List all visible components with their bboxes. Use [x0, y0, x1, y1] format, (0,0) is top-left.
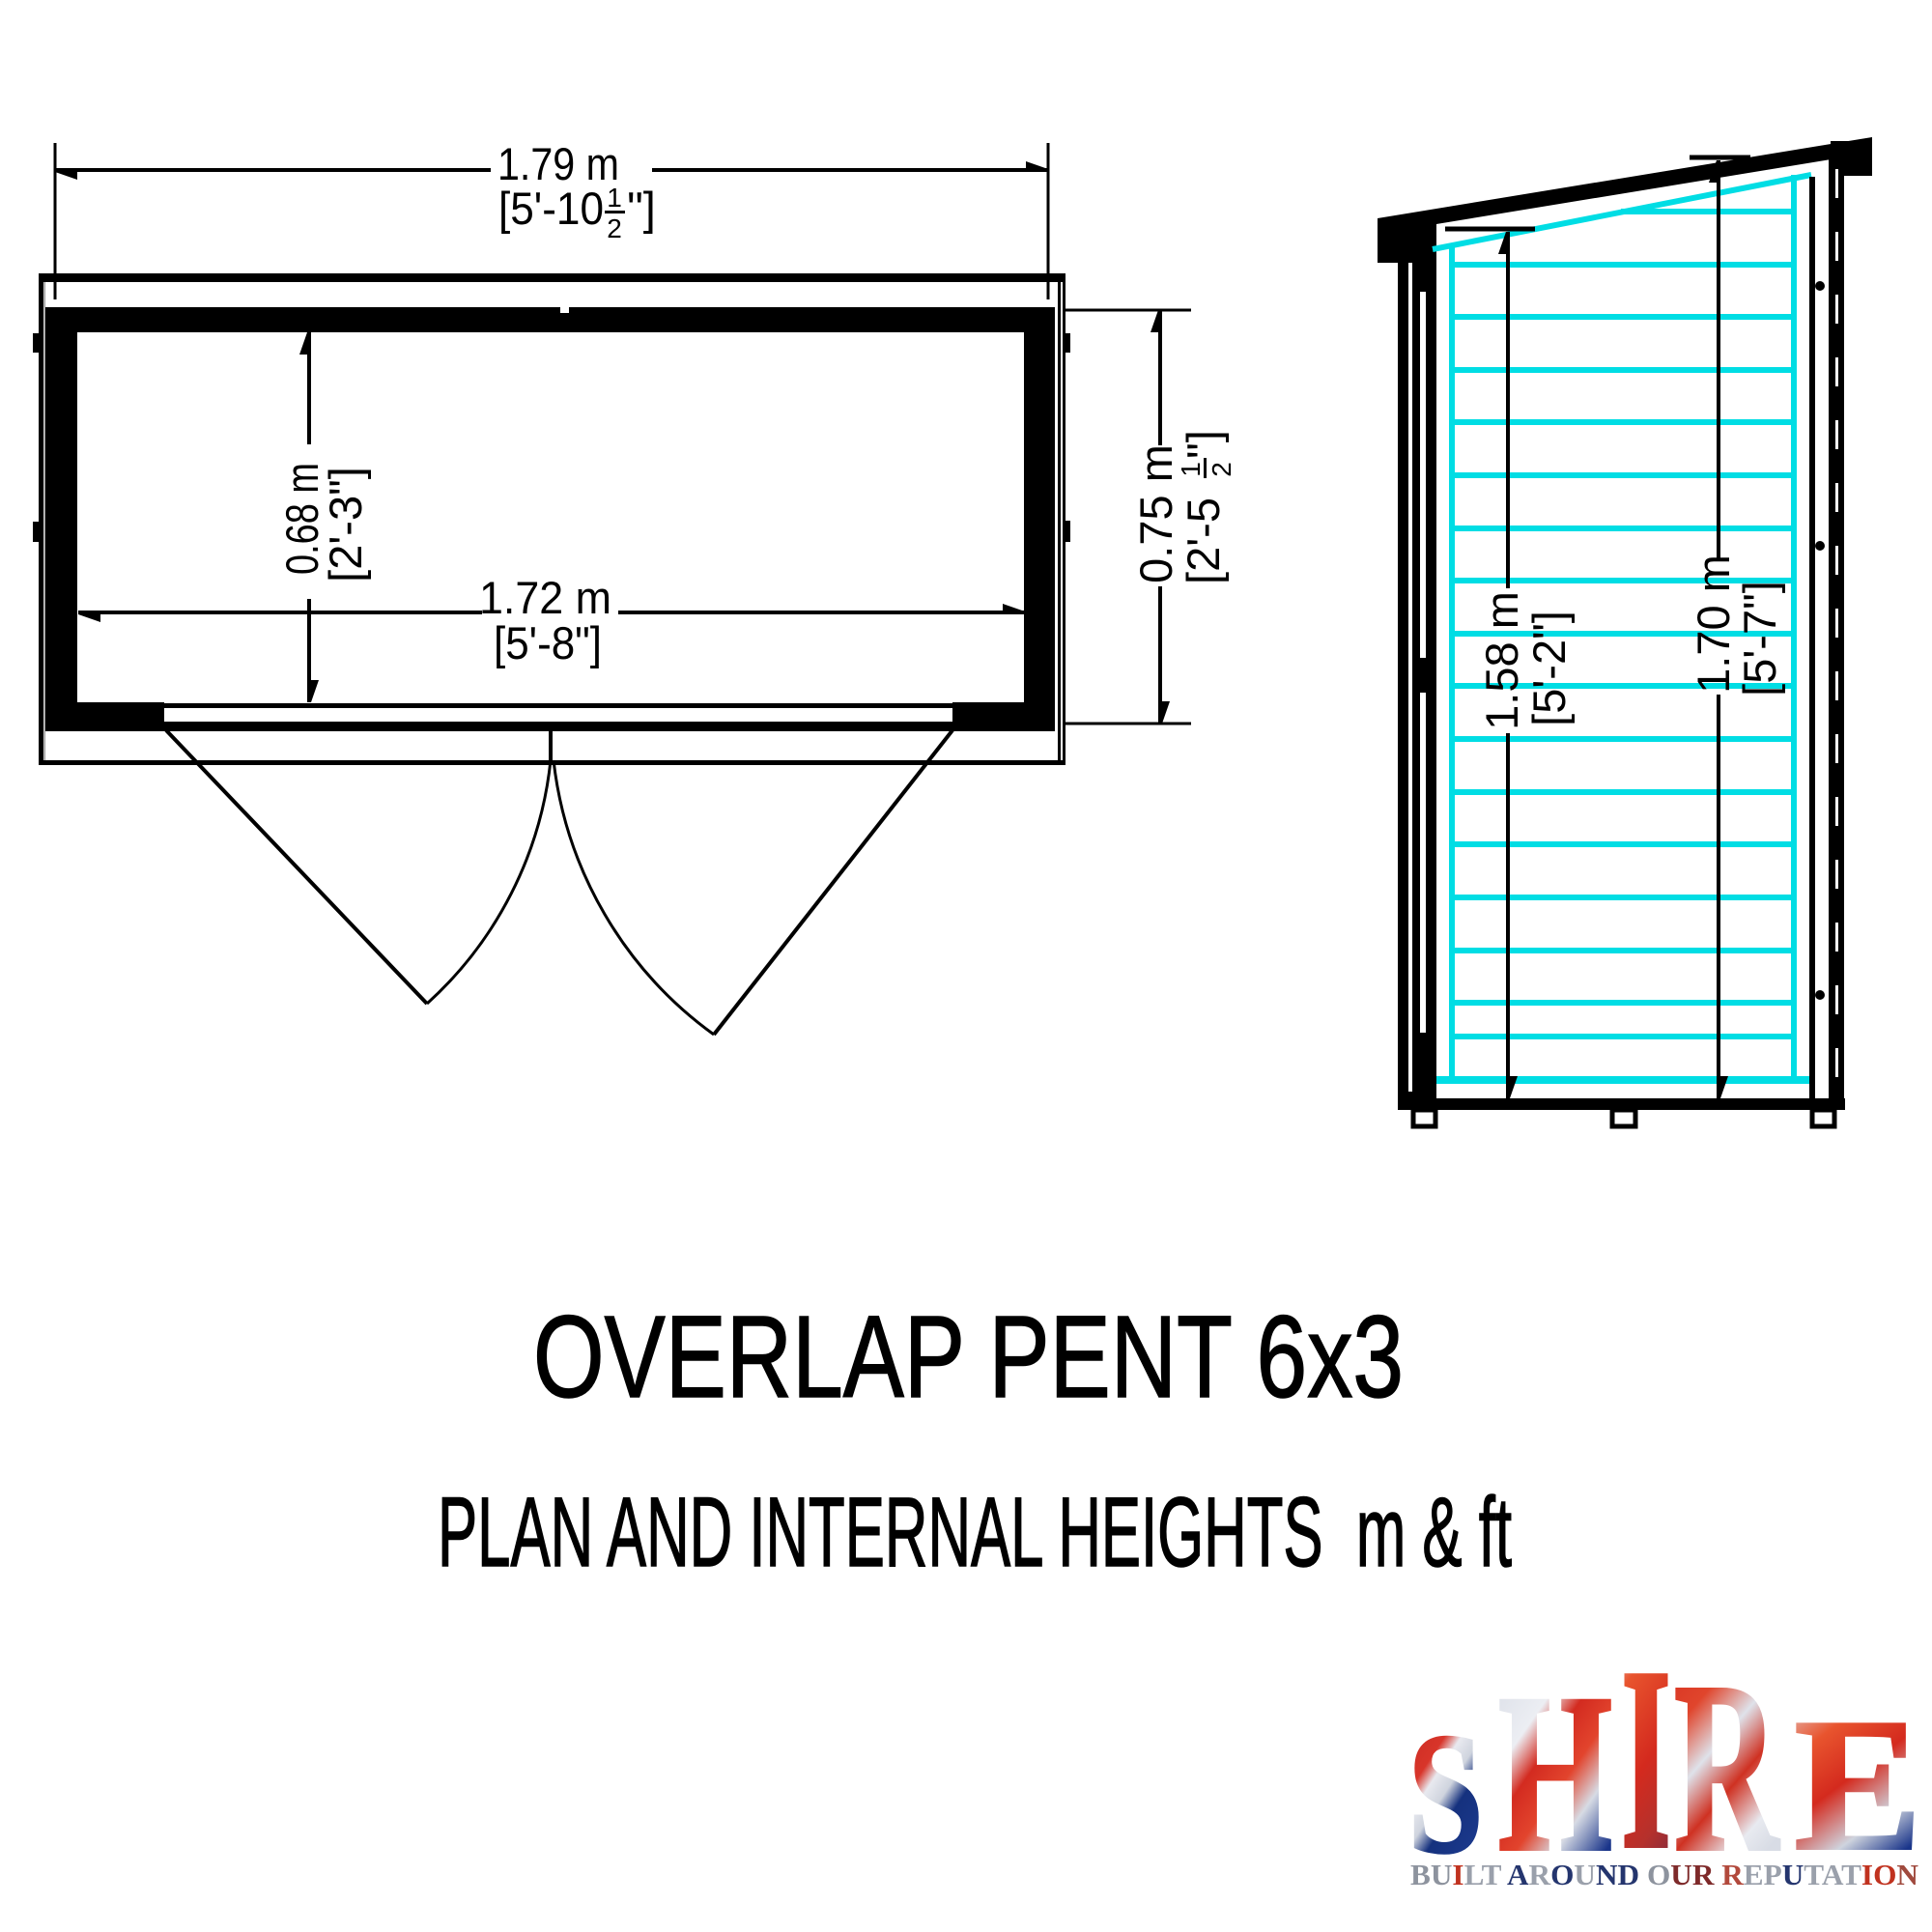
svg-text:0.75 m: 0.75 m — [1130, 444, 1181, 583]
svg-text:[5'-2"]: [5'-2"] — [1523, 611, 1575, 726]
svg-text:2: 2 — [1207, 462, 1236, 477]
svg-text:PLAN AND INTERNAL HEIGHTS m &: PLAN AND INTERNAL HEIGHTS m & ft — [438, 1477, 1512, 1587]
svg-text:[5'-8"]: [5'-8"] — [494, 617, 602, 668]
svg-text:BUILT AROUND OUR REPUTATION: BUILT AROUND OUR REPUTATION — [1410, 1858, 1918, 1891]
svg-text:OVERLAP PENT 6x3: OVERLAP PENT 6x3 — [533, 1291, 1404, 1422]
svg-text:2: 2 — [607, 213, 622, 243]
svg-text:[5'-7"]: [5'-7"] — [1734, 581, 1785, 696]
svg-text:[2'-3"]: [2'-3"] — [320, 467, 371, 582]
svg-text:1.70 m: 1.70 m — [1688, 554, 1739, 694]
svg-text:1.58 m: 1.58 m — [1476, 591, 1527, 730]
svg-text:1.72 m: 1.72 m — [479, 572, 611, 623]
svg-text:"]: "] — [1178, 430, 1229, 459]
svg-text:"]: "] — [627, 183, 656, 234]
svg-text:1: 1 — [607, 183, 622, 213]
svg-text:1: 1 — [1176, 462, 1206, 477]
svg-text:[5'-10: [5'-10 — [498, 183, 604, 234]
svg-text:[2'-5: [2'-5 — [1178, 497, 1229, 584]
